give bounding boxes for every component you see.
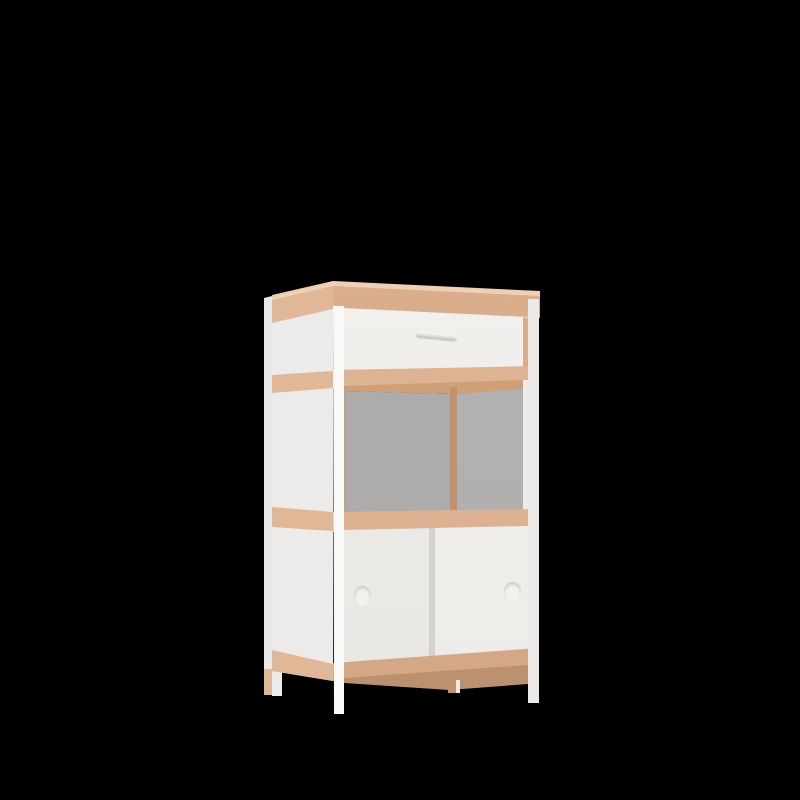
render-canvas [0, 0, 800, 800]
door-handle-left [354, 586, 371, 605]
door-handle-right [504, 582, 521, 601]
